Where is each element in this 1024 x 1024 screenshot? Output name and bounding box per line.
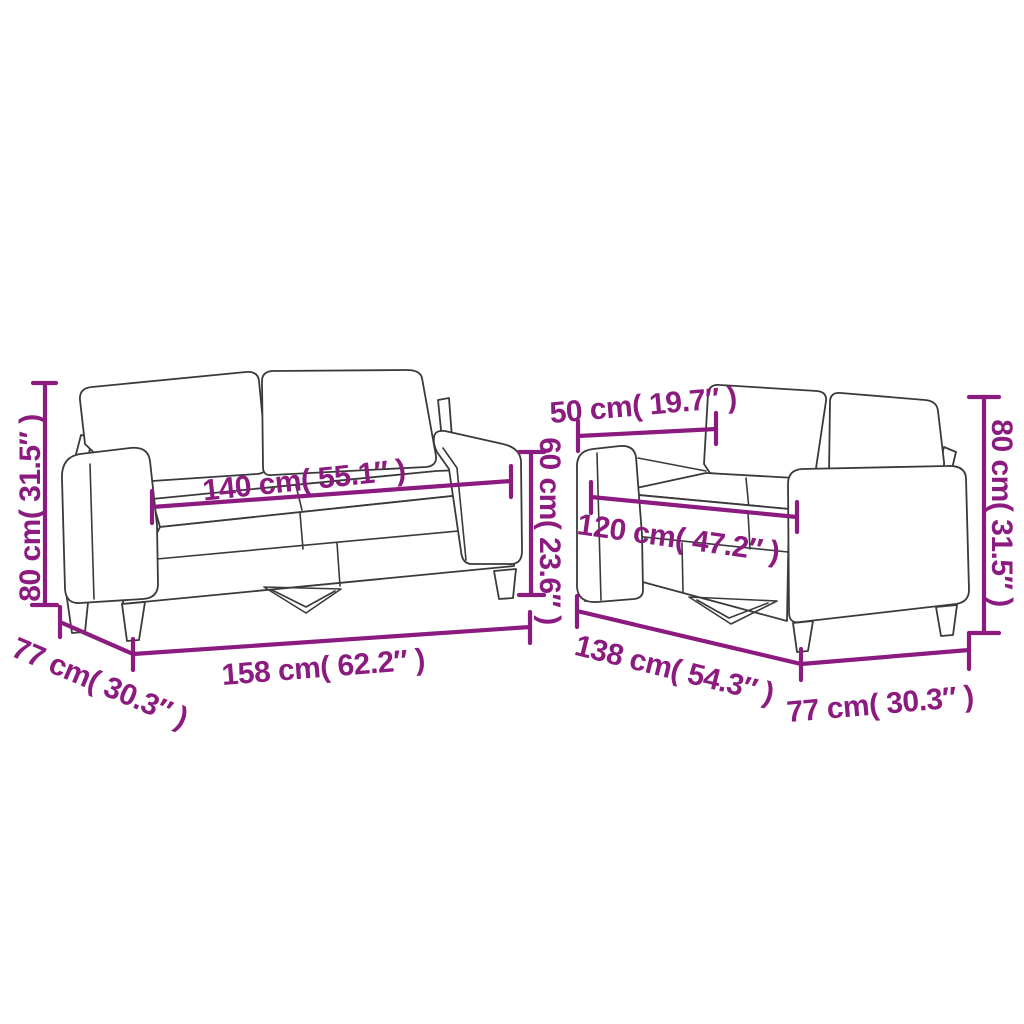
sofa-a-leg-mid [122,602,145,641]
sofa-b-leg-right [936,605,957,636]
sofa-a-overall-width-label: 158 cm( 62.2″ ) [220,643,426,692]
sofa-a-overall-width-dimension: 158 cm( 62.2″ ) [133,612,530,692]
dimension-diagram: 80 cm( 31.5″ ) 140 cm( 55.1″ ) 60 cm( 23… [0,0,1024,1024]
sofa-b-right-arm [788,466,969,622]
sofa-b-depth-line [801,633,969,669]
sofa-b-height-label: 80 cm( 31.5″ ) [985,419,1018,606]
sofa-b-depth-dimension: 77 cm( 30.3″ ) [785,633,975,729]
sofa-b-overall-width-label: 138 cm( 54.3″ ) [571,629,777,710]
sofa-b-height-dimension: 80 cm( 31.5″ ) [969,397,1018,633]
sofa-a-height-label: 80 cm( 31.5″ ) [14,414,47,601]
sofa-a-depth-dimension: 77 cm( 30.3″ ) [7,607,192,735]
sofa-b-back-edge [638,458,706,471]
sofa-a-leg-right [494,569,516,599]
sofa-a-seat-back-height-label: 60 cm( 23.6″ ) [533,437,566,624]
sofa-b-leg-mid [793,621,813,652]
sofa-a-drawing [62,370,522,641]
sofa-a-seat-back-height-dimension: 60 cm( 23.6″ ) [519,437,566,624]
sofa-a-depth-label: 77 cm( 30.3″ ) [7,631,192,735]
sofa-a-height-dimension: 80 cm( 31.5″ ) [14,383,57,605]
sofa-a-left-arm [62,448,158,603]
sofa-a-support-frame [264,587,341,613]
diagram-canvas: 80 cm( 31.5″ ) 140 cm( 55.1″ ) 60 cm( 23… [0,0,1024,1024]
sofa-b-depth-label: 77 cm( 30.3″ ) [785,680,975,729]
sofa-a-overall-width-line [133,612,530,654]
